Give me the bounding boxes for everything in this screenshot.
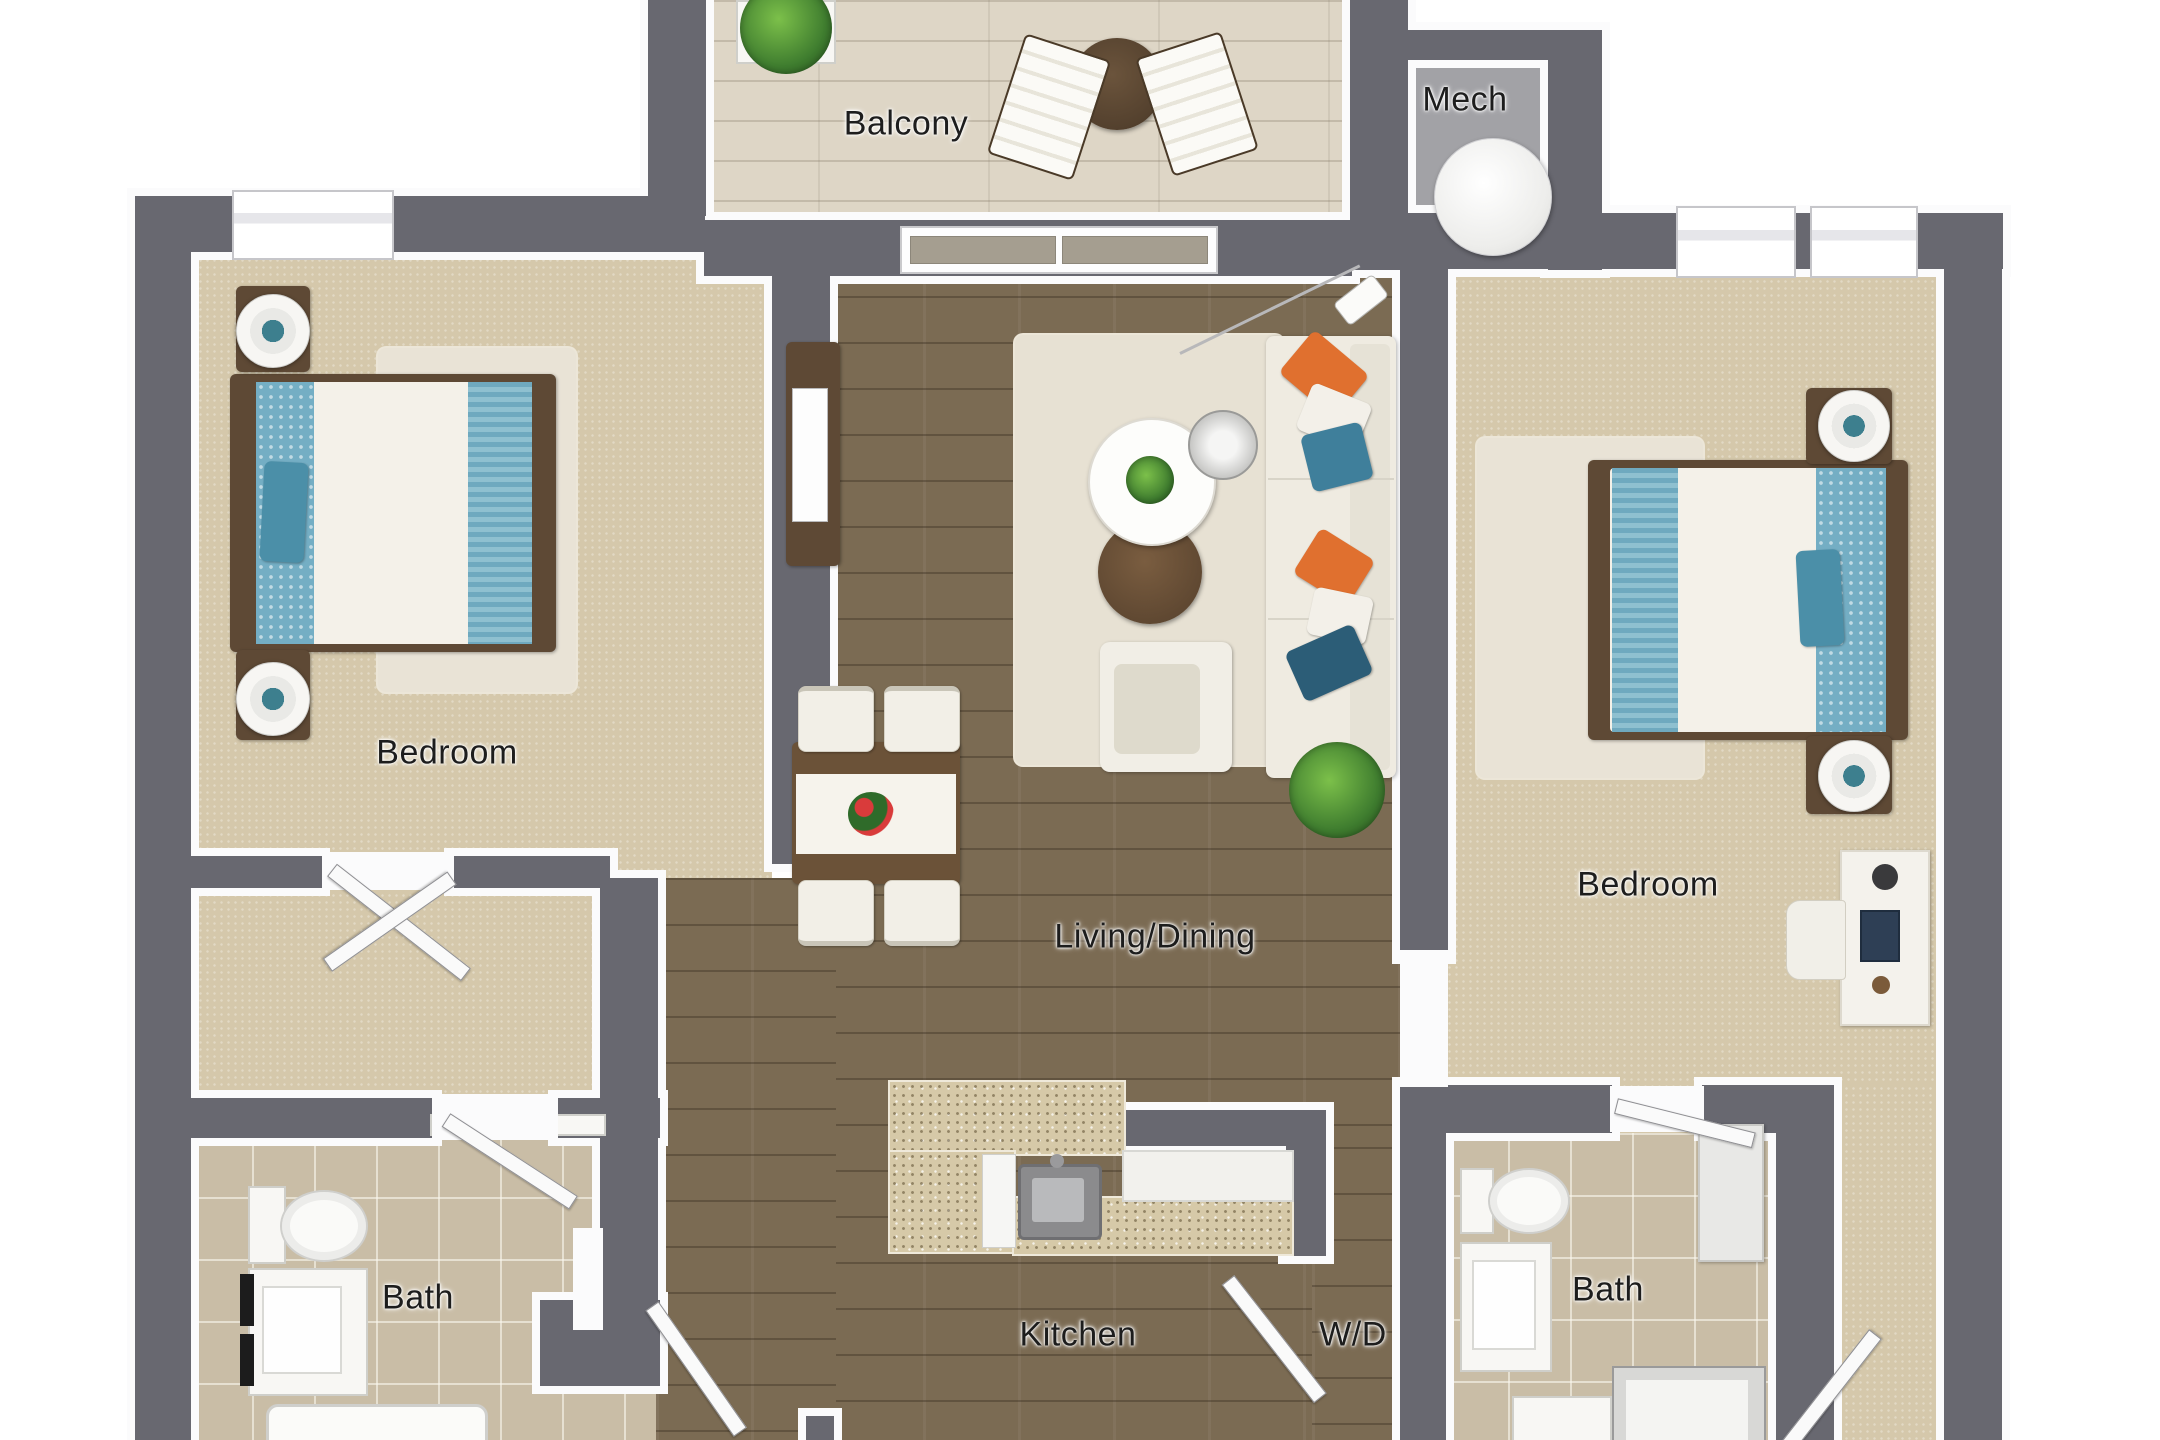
bathtub xyxy=(266,1404,488,1440)
room-label-balcony: Balcony xyxy=(844,105,968,144)
floor-plant xyxy=(1289,742,1385,838)
wall xyxy=(135,196,705,252)
flower-centerpiece xyxy=(848,792,894,836)
bed-pillow xyxy=(1796,549,1845,647)
wall xyxy=(135,196,191,1440)
wall xyxy=(806,1416,834,1440)
sliding-glass-door xyxy=(900,226,1218,274)
dining-chair xyxy=(884,880,960,946)
tv xyxy=(792,388,828,522)
room-label-living-dining: Living/Dining xyxy=(1054,918,1255,957)
bath-cabinet xyxy=(1698,1124,1764,1262)
shower-floor xyxy=(1626,1380,1748,1440)
room-label-bath-left: Bath xyxy=(382,1279,454,1318)
toilet-bowl xyxy=(280,1190,368,1262)
bed-pillow xyxy=(259,461,308,563)
table-lamp xyxy=(236,294,310,368)
glass-pane xyxy=(1062,236,1208,264)
room-label-laundry: W/D xyxy=(1319,1316,1387,1355)
dishwasher xyxy=(982,1154,1016,1248)
window xyxy=(1676,206,1796,278)
door-opening xyxy=(1400,950,1448,1087)
table-lamp xyxy=(236,662,310,736)
desk-chair xyxy=(1786,900,1846,980)
dining-chair xyxy=(884,686,960,752)
towel xyxy=(240,1334,254,1386)
table-lamp xyxy=(1818,740,1890,812)
room-label-bedroom-left: Bedroom xyxy=(376,734,517,773)
wall xyxy=(1400,1085,1612,1133)
room-label-bedroom-right: Bedroom xyxy=(1577,866,1718,905)
mug-icon xyxy=(1872,976,1890,994)
bed-runner xyxy=(468,382,532,644)
room-label-kitchen: Kitchen xyxy=(1020,1316,1137,1355)
bed-runner xyxy=(1612,468,1678,732)
dining-chair xyxy=(798,686,874,752)
wall xyxy=(1400,252,1448,956)
toilet-bowl xyxy=(1488,1168,1570,1234)
glass-pane xyxy=(910,236,1056,264)
window xyxy=(232,190,394,260)
room-label-mech: Mech xyxy=(1422,81,1507,120)
towel xyxy=(240,1274,254,1326)
desk-lamp-icon xyxy=(1872,864,1898,890)
wall xyxy=(1400,1133,1446,1440)
room-label-bath-right: Bath xyxy=(1572,1271,1644,1310)
armchair-cushion xyxy=(1114,664,1200,754)
window xyxy=(1810,206,1918,278)
wall xyxy=(190,1098,434,1138)
wall xyxy=(600,878,658,1302)
wall xyxy=(1944,213,2002,1440)
wall xyxy=(648,0,706,216)
water-heater xyxy=(1434,138,1552,256)
faucet-icon xyxy=(1050,1154,1064,1168)
table-lamp xyxy=(1818,390,1890,462)
kitchen-sink-basin xyxy=(1032,1178,1084,1222)
wall xyxy=(190,856,322,888)
vanity-basin xyxy=(1472,1260,1536,1350)
tub-edge xyxy=(1512,1396,1612,1440)
wall xyxy=(1398,30,1602,60)
dining-chair xyxy=(798,880,874,946)
kitchen-island xyxy=(888,1080,1126,1156)
laptop xyxy=(1860,910,1900,962)
wall xyxy=(452,856,610,888)
vanity-basin xyxy=(262,1286,342,1374)
floor-plan: Balcony Mech Bedroom Living/Dining Bedro… xyxy=(0,0,2160,1440)
table-plant xyxy=(1126,456,1174,504)
side-table-glass xyxy=(1188,410,1258,480)
door-opening xyxy=(573,1228,603,1330)
stove-counter xyxy=(1122,1150,1294,1202)
